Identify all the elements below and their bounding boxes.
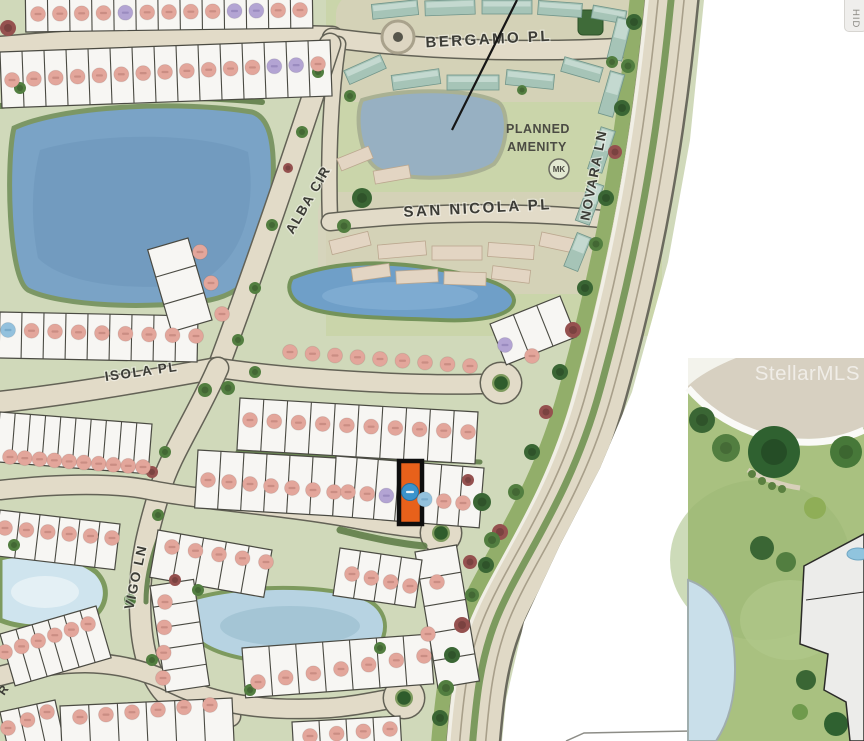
lot-status-marker-label bbox=[109, 537, 116, 539]
lot-status-marker-label bbox=[293, 64, 300, 66]
lot-status-marker-label bbox=[529, 355, 536, 357]
lot-status-marker-label bbox=[467, 365, 474, 367]
tree-icon-core bbox=[252, 285, 258, 291]
lot-status-marker-label bbox=[192, 550, 199, 552]
lot-status-marker-label bbox=[309, 353, 316, 355]
lot-status-marker-label bbox=[208, 282, 215, 284]
cul-de-sac-tree-icon bbox=[397, 691, 411, 705]
tree-icon-core bbox=[469, 592, 476, 599]
hide-map-button-label: HID bbox=[850, 9, 861, 28]
lot-status-marker-label bbox=[268, 485, 275, 487]
lot-status-marker-label bbox=[66, 460, 73, 462]
stellar-mls-watermark: StellarMLS bbox=[755, 362, 860, 385]
lot-status-marker-label bbox=[166, 11, 173, 13]
lot-status-marker-label bbox=[247, 419, 254, 421]
lot-status-marker-label bbox=[387, 728, 394, 730]
partial-element-edge bbox=[566, 731, 692, 741]
lot-status-marker-label bbox=[44, 711, 51, 713]
lot-status-marker-label bbox=[51, 634, 58, 636]
lake-highlight bbox=[220, 606, 360, 646]
lot-status-marker-label bbox=[44, 531, 51, 533]
lot-status-marker-label bbox=[35, 640, 42, 642]
lot-status-marker-label bbox=[332, 354, 339, 356]
lot-status-marker-label bbox=[422, 361, 429, 363]
lot-status-marker-label bbox=[7, 456, 14, 458]
tree-icon-core bbox=[467, 559, 474, 566]
lot-status-marker-label bbox=[52, 330, 59, 332]
lot-status-marker-label bbox=[319, 423, 326, 425]
condo-building bbox=[432, 246, 482, 260]
lot-status-marker-label bbox=[30, 78, 37, 80]
lot-status-marker-label bbox=[271, 65, 278, 67]
lot-status-marker-label bbox=[407, 585, 414, 587]
lot-status-marker-label bbox=[460, 502, 467, 504]
planned-amenity-label-line2: AMENITY bbox=[507, 140, 567, 154]
lot-status-marker-label bbox=[365, 664, 372, 666]
lot-status-marker-label bbox=[310, 672, 317, 674]
lake bbox=[33, 137, 251, 287]
lot-status-marker-label bbox=[434, 581, 441, 583]
tree-icon-core bbox=[162, 449, 168, 455]
lot-status-marker-label bbox=[193, 335, 200, 337]
lot-status-marker-label bbox=[160, 677, 167, 679]
mk-badge-label: MK bbox=[553, 165, 566, 174]
lot-status-marker-label bbox=[160, 652, 167, 654]
lot-status-marker-label bbox=[249, 66, 256, 68]
tree-icon-core bbox=[286, 166, 291, 171]
lot-status-marker-label bbox=[216, 553, 223, 555]
lot-status-marker-label bbox=[263, 561, 270, 563]
lot-status-marker-label bbox=[144, 11, 151, 13]
condo-building bbox=[488, 242, 535, 259]
lot-status-marker-label bbox=[125, 465, 132, 467]
lot-status-marker-label bbox=[227, 67, 234, 69]
cul-de-sac-tree-icon bbox=[494, 376, 508, 390]
tree-icon-core bbox=[347, 93, 353, 99]
lot-status-marker-label bbox=[209, 10, 216, 12]
lot-status-marker-label bbox=[271, 420, 278, 422]
lot-status-marker-label bbox=[80, 461, 87, 463]
tree-icon-core bbox=[609, 59, 615, 65]
lot-status-marker-label bbox=[85, 623, 92, 625]
tree-icon-core bbox=[448, 651, 456, 659]
lot-status-marker-label bbox=[24, 719, 31, 721]
lot-status-marker-label bbox=[23, 529, 30, 531]
lot-status-marker-label bbox=[5, 727, 12, 729]
lot-status-marker bbox=[303, 729, 318, 741]
lake-highlight bbox=[11, 576, 79, 608]
tree-icon-core bbox=[569, 326, 577, 334]
lot-status-marker-label bbox=[9, 79, 16, 81]
lot-status-marker-label bbox=[118, 73, 125, 75]
tree-icon-core bbox=[299, 129, 305, 135]
lot-status-marker-label bbox=[275, 9, 282, 11]
tree-icon-core bbox=[436, 714, 444, 722]
lot-status-marker-label bbox=[465, 431, 472, 433]
condo-building bbox=[396, 269, 439, 284]
inset-pool bbox=[847, 548, 864, 560]
lot-status-marker-label bbox=[36, 458, 43, 460]
lot-status-marker-label bbox=[103, 714, 110, 716]
tree-icon-core bbox=[488, 536, 496, 544]
tree-icon-core bbox=[377, 645, 383, 651]
tree-icon-core bbox=[465, 477, 471, 483]
lot-status-marker-label bbox=[169, 546, 176, 548]
lot-status-marker-label bbox=[78, 12, 85, 14]
lot-status-marker-label bbox=[399, 360, 406, 362]
tree-icon-core bbox=[556, 368, 564, 376]
lot-status-marker-label bbox=[2, 527, 9, 529]
lot-status-marker-label bbox=[28, 330, 35, 332]
lot-status-marker-label bbox=[282, 677, 289, 679]
lot-status-marker-label bbox=[368, 577, 375, 579]
tree-icon-core bbox=[341, 223, 348, 230]
lake-highlight bbox=[322, 282, 478, 310]
tree-icon-core bbox=[252, 369, 258, 375]
lot-status-marker-label bbox=[421, 655, 428, 657]
lot-status-marker-label bbox=[100, 12, 107, 14]
lot-status-marker-label bbox=[331, 491, 338, 493]
lot-status-marker-label bbox=[247, 483, 254, 485]
lot-status-marker-label bbox=[502, 344, 509, 346]
lot-status-marker-label bbox=[122, 12, 129, 14]
tree-icon-core bbox=[172, 577, 178, 583]
lot-status-marker-label bbox=[383, 495, 390, 497]
tree-icon-core bbox=[630, 18, 638, 26]
detail-inset-image: StellarMLS bbox=[670, 358, 864, 741]
lot-status-marker-label bbox=[354, 356, 361, 358]
lot-status-marker-label bbox=[95, 463, 102, 465]
tree-icon-core bbox=[581, 284, 589, 292]
tree-icon-core bbox=[528, 448, 536, 456]
tree-icon-core bbox=[602, 194, 610, 202]
tree-icon-core bbox=[593, 241, 600, 248]
lot-status-marker-label bbox=[129, 711, 136, 713]
planned-amenity-label-line1: PLANNED bbox=[506, 122, 570, 136]
tree-icon-core bbox=[482, 561, 490, 569]
lot-status-marker-label bbox=[75, 331, 82, 333]
tree-icon-core bbox=[17, 85, 23, 91]
lot-status-marker-label bbox=[169, 334, 176, 336]
lot-status-marker-label bbox=[161, 626, 168, 628]
tree-icon-core bbox=[202, 387, 209, 394]
condo-building bbox=[444, 271, 486, 285]
lot-status-marker-label bbox=[219, 313, 226, 315]
lot-status-marker-label bbox=[307, 735, 314, 737]
lot-status-marker-label bbox=[140, 72, 147, 74]
highlighted-lot-marker-label bbox=[406, 491, 414, 493]
lot-status-marker-label bbox=[444, 363, 451, 365]
lot-status-marker-label bbox=[35, 13, 42, 15]
tree-icon-core bbox=[155, 512, 161, 518]
lot-status-marker-label bbox=[377, 358, 384, 360]
lot-status-marker-label bbox=[18, 645, 25, 647]
lot-status-marker-label bbox=[197, 251, 204, 253]
lot-status-marker-label bbox=[338, 668, 345, 670]
tree-icon-core bbox=[269, 222, 275, 228]
lot-status-marker-label bbox=[162, 71, 169, 73]
lot-status-marker-label bbox=[231, 10, 238, 12]
lot-status-marker-label bbox=[140, 466, 147, 468]
lot-status-marker-label bbox=[310, 489, 317, 491]
site-plan-screenshot: BERGAMO PL SAN NICOLA PL PLANNED AMENITY… bbox=[0, 0, 864, 741]
tree-icon-core bbox=[4, 24, 12, 32]
lot-status-marker-label bbox=[253, 10, 260, 12]
lot-status-marker-label bbox=[74, 75, 81, 77]
roundabout-center bbox=[393, 32, 403, 42]
lot-status-marker-label bbox=[110, 464, 117, 466]
lot-status-marker-label bbox=[122, 333, 129, 335]
lot-status-marker-label bbox=[146, 333, 153, 335]
lot-status-marker-label bbox=[87, 535, 94, 537]
lot-status-marker-label bbox=[425, 633, 432, 635]
tree-icon-core bbox=[247, 687, 253, 693]
lot-status-marker-label bbox=[162, 601, 169, 603]
lot-status-marker-label bbox=[187, 11, 194, 13]
lot-status-marker-label bbox=[2, 651, 9, 653]
lot-status-marker-label bbox=[66, 533, 73, 535]
tree-icon-core bbox=[618, 104, 626, 112]
tree-icon-core bbox=[442, 684, 450, 692]
lot-status-marker-label bbox=[392, 427, 399, 429]
condo-building-roof bbox=[484, 2, 531, 7]
lot-status-marker-label bbox=[360, 730, 367, 732]
lot-status-marker-label bbox=[289, 487, 296, 489]
tree-icon-core bbox=[357, 193, 367, 203]
lot-status-marker-label bbox=[56, 13, 63, 15]
lot-status-marker-label bbox=[77, 716, 84, 718]
tree-icon-core bbox=[149, 657, 155, 663]
lot-status-marker-label bbox=[368, 426, 375, 428]
cul-de-sac-tree-icon bbox=[434, 526, 448, 540]
lot-status-marker-label bbox=[333, 733, 340, 735]
lot-status-marker-label bbox=[315, 63, 322, 65]
lot-status-marker-label bbox=[155, 709, 162, 711]
lot-status-marker-label bbox=[205, 69, 212, 71]
tree-icon-core bbox=[478, 498, 487, 507]
lot-status-marker-label bbox=[5, 329, 12, 331]
tree-icon-core bbox=[195, 587, 201, 593]
lot-status-marker-label bbox=[440, 500, 447, 502]
tree-icon-core bbox=[612, 149, 619, 156]
lot-status-marker-label bbox=[226, 481, 233, 483]
lot-status-marker-label bbox=[287, 351, 294, 353]
site-plan-image: BERGAMO PL SAN NICOLA PL PLANNED AMENITY… bbox=[0, 0, 864, 741]
lot-status-marker-label bbox=[421, 498, 428, 500]
lot-status-marker-label bbox=[205, 479, 212, 481]
condo-building-roof bbox=[449, 77, 498, 83]
lot-status-marker-label bbox=[52, 77, 59, 79]
lot-status-marker-label bbox=[416, 428, 423, 430]
lot-status-marker-label bbox=[207, 704, 214, 706]
tree-icon-core bbox=[235, 337, 241, 343]
lot-status-marker-label bbox=[181, 706, 188, 708]
lot-status-marker-label bbox=[295, 422, 302, 424]
tree-icon-core bbox=[625, 63, 632, 70]
lot-status-marker-label bbox=[183, 70, 190, 72]
tree-icon-core bbox=[520, 88, 525, 93]
tree-icon-core bbox=[225, 385, 232, 392]
tree-icon-core bbox=[512, 488, 520, 496]
lot-status-marker-label bbox=[99, 332, 106, 334]
tree-icon-core bbox=[458, 621, 466, 629]
lot-status-marker-label bbox=[364, 493, 371, 495]
lot-status-marker-label bbox=[255, 681, 262, 683]
hide-map-button[interactable]: HID bbox=[844, 0, 864, 32]
lot-status-marker-label bbox=[239, 557, 246, 559]
lake bbox=[359, 91, 506, 177]
tree-icon-core bbox=[11, 542, 17, 548]
lot-status-marker-label bbox=[297, 9, 304, 11]
lot-status-marker-label bbox=[96, 74, 103, 76]
lot-status-marker-label bbox=[349, 573, 356, 575]
lot-status-marker-label bbox=[440, 430, 447, 432]
lot-status-marker-label bbox=[393, 659, 400, 661]
lot-status-marker-label bbox=[21, 457, 28, 459]
main-map-area: BERGAMO PL SAN NICOLA PL PLANNED AMENITY… bbox=[0, 0, 704, 741]
lot-status-marker-label bbox=[68, 629, 75, 631]
tree-icon-core bbox=[543, 409, 550, 416]
lot-status-marker-label bbox=[343, 424, 350, 426]
lot-status-marker-label bbox=[345, 491, 352, 493]
lot-status-marker-label bbox=[51, 459, 58, 461]
lot-status-marker-label bbox=[387, 581, 394, 583]
